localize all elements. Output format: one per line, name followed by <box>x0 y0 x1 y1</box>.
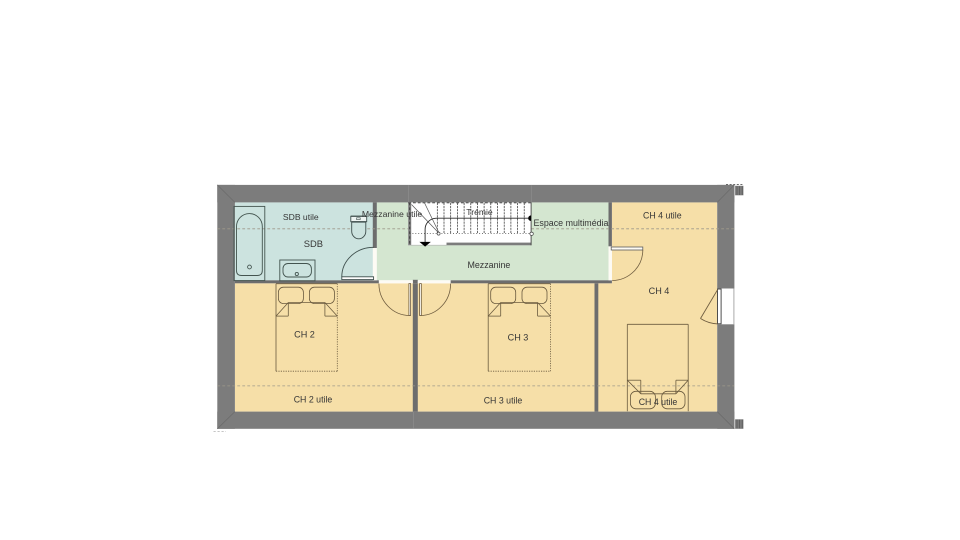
svg-text:SDB: SDB <box>304 238 323 249</box>
svg-text:CH 4 utile: CH 4 utile <box>639 397 678 407</box>
svg-text:CH 2 utile: CH 2 utile <box>294 394 333 404</box>
svg-text:Trémie: Trémie <box>466 207 493 217</box>
svg-text:CH 4 utile: CH 4 utile <box>643 210 682 220</box>
svg-text:CH 3: CH 3 <box>508 333 529 343</box>
svg-text:Espace multimédia: Espace multimédia <box>534 218 609 228</box>
svg-text:CH 3 utile: CH 3 utile <box>484 395 523 405</box>
svg-text:CH 4: CH 4 <box>649 286 670 296</box>
svg-text:SDB utile: SDB utile <box>283 212 319 222</box>
svg-text:Mezzanine utile: Mezzanine utile <box>362 209 423 219</box>
svg-text:Mezzanine: Mezzanine <box>467 260 510 270</box>
svg-text:CH 2: CH 2 <box>294 330 315 340</box>
